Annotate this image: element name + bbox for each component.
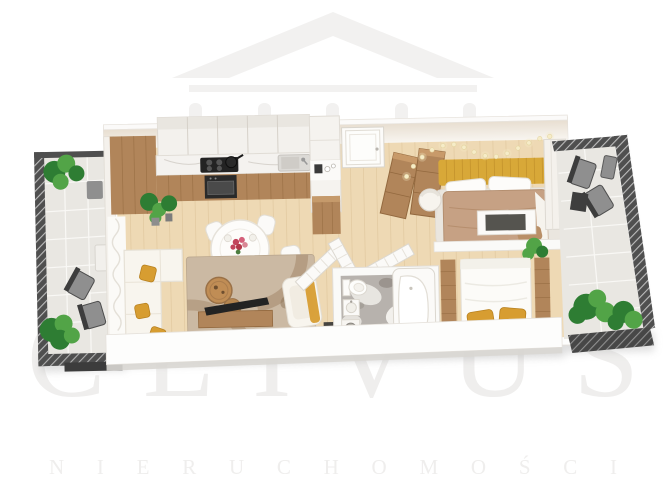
- upper-cabinets: [157, 114, 310, 157]
- base-cabinets: [157, 172, 320, 201]
- floor-plan: [33, 107, 656, 372]
- scene-canvas: CLIVUS NIERUCHOMOŚCI: [0, 0, 667, 500]
- coffee-machine: [314, 164, 322, 173]
- desk: [477, 210, 535, 235]
- outdoor-table: [570, 192, 589, 212]
- apartment: [101, 109, 572, 371]
- balcony-right: [552, 134, 657, 353]
- oven: [205, 175, 237, 199]
- lintel-bar: [189, 85, 477, 92]
- mustard-pillow: [139, 264, 157, 282]
- pot: [226, 156, 237, 167]
- mustard-pillow: [134, 303, 150, 319]
- washbasin: [343, 299, 359, 315]
- coffee-cabinet: [309, 116, 341, 235]
- entrance-door: [342, 127, 385, 168]
- subtitle-watermark: NIERUCHOMOŚCI: [49, 455, 617, 479]
- kitchen-sink: [278, 154, 310, 171]
- barrel-chair: [419, 189, 441, 211]
- floor-plan-render: CLIVUS NIERUCHOMOŚCI: [0, 0, 667, 500]
